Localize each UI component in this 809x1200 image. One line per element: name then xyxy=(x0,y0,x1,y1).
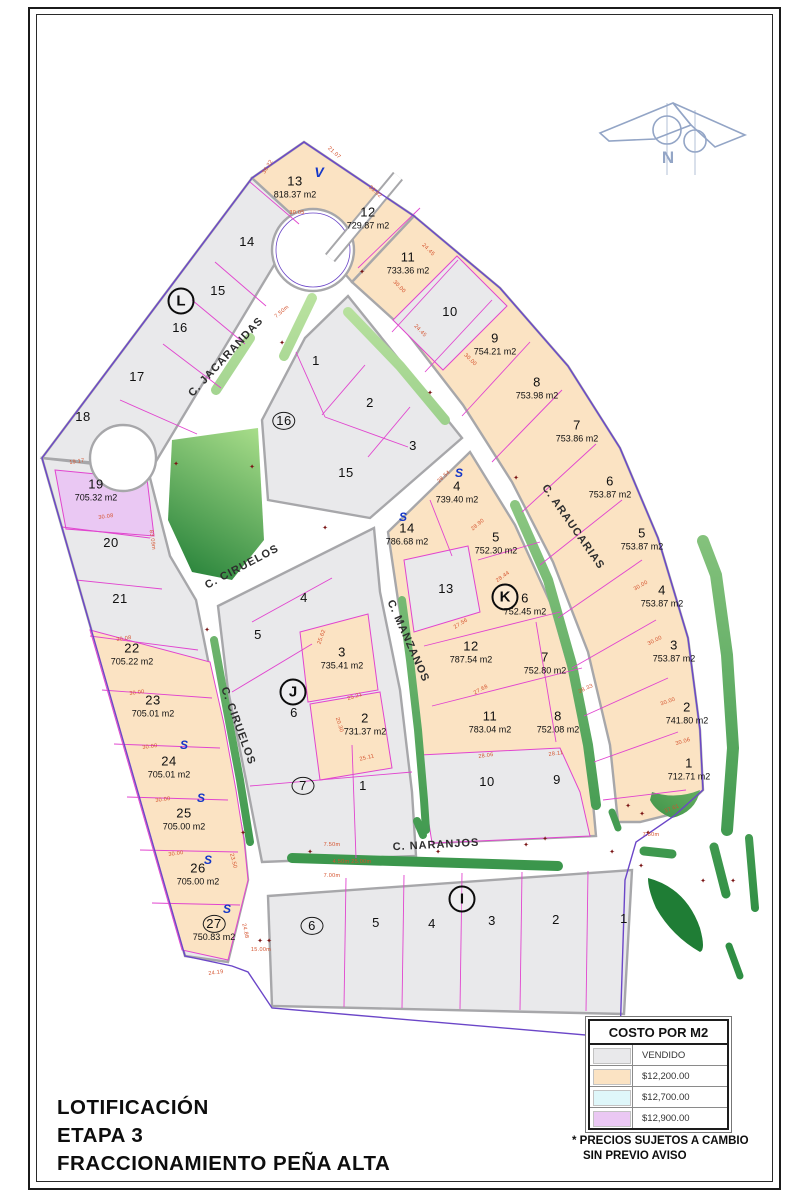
title-line: FRACCIONAMIENTO PEÑA ALTA xyxy=(57,1150,390,1178)
legend-swatch xyxy=(590,1108,633,1128)
legend-swatch xyxy=(590,1045,633,1065)
disclaimer-line: * PRECIOS SUJETOS A CAMBIO xyxy=(572,1134,749,1149)
sheet-border-inner xyxy=(36,14,773,1182)
legend-title: COSTO POR M2 xyxy=(590,1021,727,1045)
legend-row: $12,200.00 xyxy=(590,1065,727,1086)
title-block: LOTIFICACIÓNETAPA 3FRACCIONAMIENTO PEÑA … xyxy=(57,1094,390,1178)
price-disclaimer: * PRECIOS SUJETOS A CAMBIOSIN PREVIO AVI… xyxy=(572,1134,749,1164)
title-line: ETAPA 3 xyxy=(57,1122,390,1150)
legend-label: $12,900.00 xyxy=(633,1108,690,1128)
legend-row: $12,700.00 xyxy=(590,1086,727,1107)
legend-label: $12,700.00 xyxy=(633,1087,690,1107)
legend-swatch xyxy=(590,1087,633,1107)
legend-row: VENDIDO xyxy=(590,1045,727,1065)
legend-row: $12,900.00 xyxy=(590,1107,727,1128)
legend-rows: VENDIDO$12,200.00$12,700.00$12,900.00 xyxy=(590,1045,727,1128)
legend-swatch xyxy=(590,1066,633,1086)
price-legend: COSTO POR M2 VENDIDO$12,200.00$12,700.00… xyxy=(585,1016,732,1133)
legend-label: VENDIDO xyxy=(633,1045,685,1065)
title-line: LOTIFICACIÓN xyxy=(57,1094,390,1122)
disclaimer-line: SIN PREVIO AVISO xyxy=(572,1149,749,1164)
legend-label: $12,200.00 xyxy=(633,1066,690,1086)
price-legend-box: COSTO POR M2 VENDIDO$12,200.00$12,700.00… xyxy=(588,1019,729,1130)
